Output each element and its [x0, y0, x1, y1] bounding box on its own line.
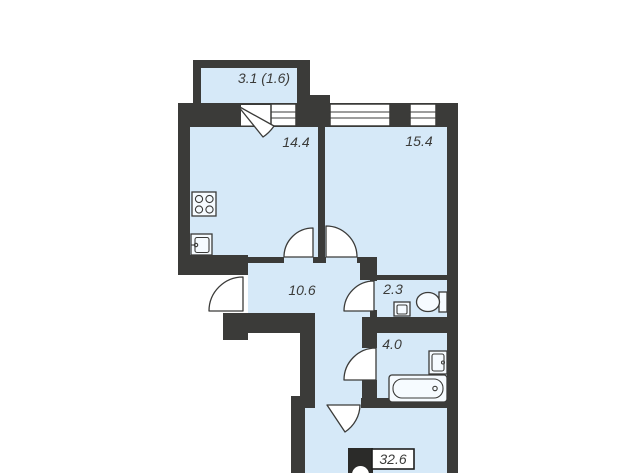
stove-icon: [192, 192, 216, 216]
kitchen-bedroom-divider: [318, 127, 325, 260]
balcony-left-wall: [193, 60, 201, 107]
balcony-top-wall: [193, 60, 310, 68]
bathtub-icon: [389, 375, 447, 402]
bottom-room-left-wall: [291, 398, 305, 473]
floor-plan-drawing: [0, 0, 640, 473]
entry-door-swing: [209, 277, 243, 311]
kitchen-bottom-wall: [178, 255, 248, 275]
balcony-window: [271, 104, 296, 126]
kitchen-sink-icon: [191, 234, 212, 255]
left-exterior-wall: [178, 103, 190, 275]
total-area-value: 32.6: [379, 452, 406, 466]
windows: [271, 104, 436, 126]
wc-toilet-icon: [417, 292, 448, 312]
bedroom-area-label: 15.4: [405, 134, 432, 148]
entry-lower-block: [223, 313, 248, 340]
kitchen-area-label: 14.4: [282, 135, 309, 149]
right-exterior-wall: [447, 103, 458, 473]
bedroom-window-2: [410, 104, 436, 126]
washbasin-icon: [429, 351, 447, 374]
toilet-sink-icon: [394, 302, 410, 316]
floor-plan: 3.1 (1.6) 14.4 15.4 10.6 2.3 4.0 32.6: [0, 0, 640, 473]
mid-band-right-wall: [362, 317, 458, 333]
bedroom-floor-lower: [377, 257, 447, 275]
bedroom-window-1: [330, 104, 390, 126]
bathroom-area-label: 4.0: [382, 337, 401, 351]
toilet-top-wall: [370, 275, 447, 280]
toilet-area-label: 2.3: [383, 282, 402, 296]
column-left-wall: [300, 317, 315, 405]
balcony-area-label: 3.1 (1.6): [238, 71, 290, 85]
hallway-area-label: 10.6: [288, 283, 315, 297]
